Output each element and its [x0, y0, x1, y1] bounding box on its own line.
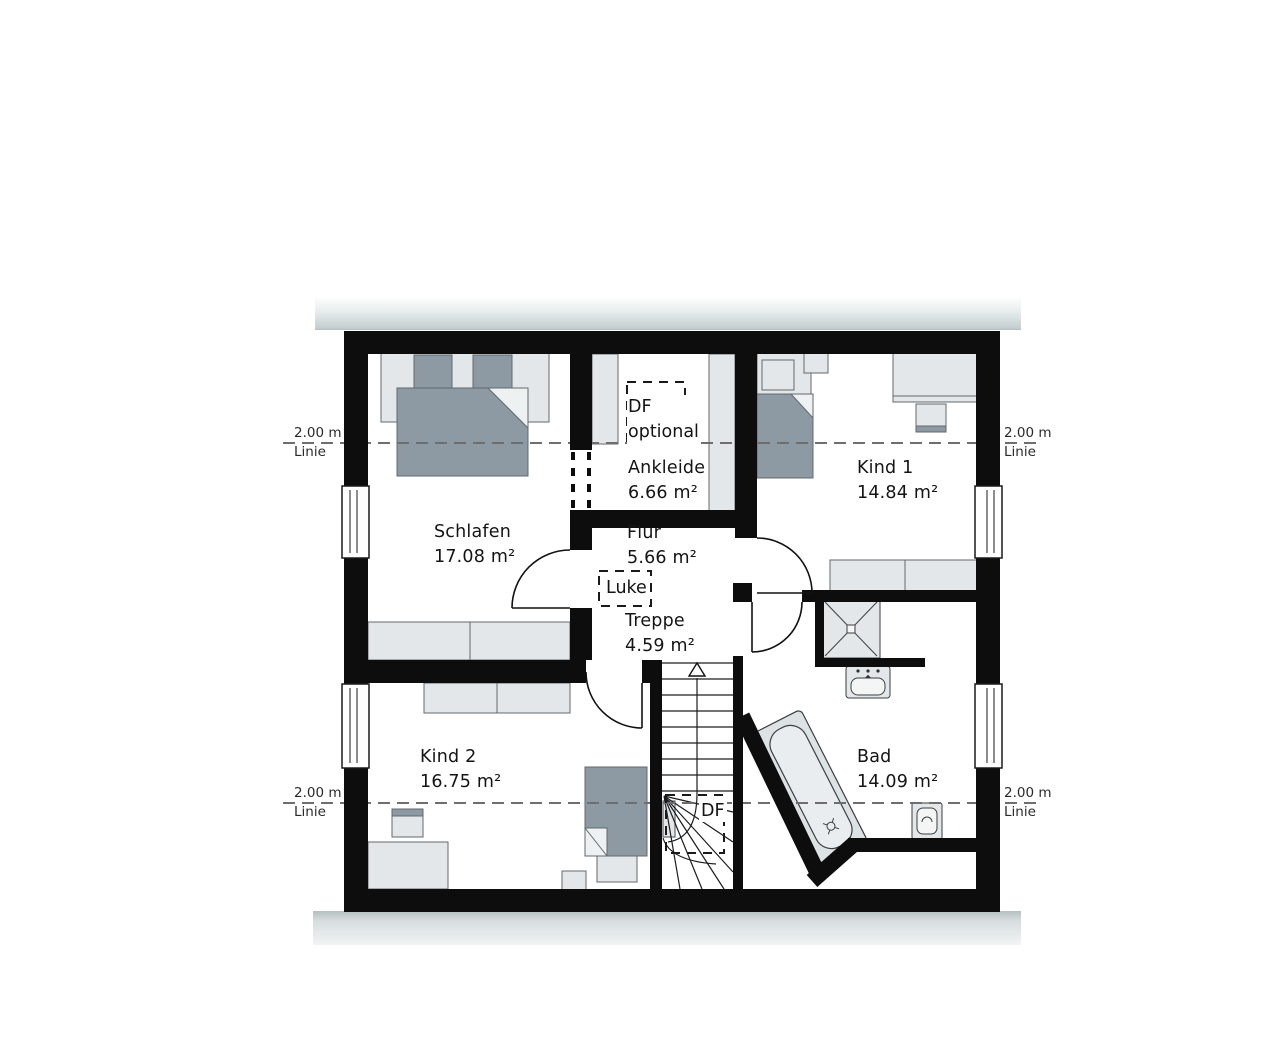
toilet-icon [912, 803, 942, 839]
room-label-kind2: Kind 2 16.75 m² [420, 745, 501, 795]
window-icon [975, 684, 1002, 768]
door-arc-kind1 [757, 538, 812, 593]
annotation-attic-hatch: Luke [604, 577, 649, 599]
up-arrow-icon [689, 663, 705, 676]
room-label-schlafen: Schlafen 17.08 m² [434, 520, 515, 570]
roof-eave-top [315, 298, 1021, 330]
sideboard-icon [368, 622, 570, 660]
kneewall-marker-bottom-right: 2.00 m Linie [1004, 784, 1052, 822]
window-icon [342, 684, 369, 768]
window-icon [975, 486, 1002, 558]
door-arc-bad [752, 602, 802, 652]
room-label-treppe: Treppe 4.59 m² [625, 609, 695, 659]
desk-icon [893, 352, 982, 402]
single-bed-icon [562, 767, 647, 895]
floorplan-page: Schlafen 17.08 m² Ankleide 6.66 m² Kind … [0, 0, 1280, 1058]
room-label-ankleide: Ankleide 6.66 m² [628, 456, 705, 506]
annotation-roof-window: DF [699, 800, 727, 822]
chair-icon [392, 809, 423, 837]
staircase [662, 663, 733, 889]
kneewall-marker-top-left: 2.00 m Linie [294, 424, 342, 462]
double-bed-icon [381, 352, 549, 476]
door-arc-kind2 [586, 672, 642, 728]
sink-icon [846, 666, 890, 698]
annotation-roof-window-optional: DF optional [627, 395, 700, 445]
window-icon [342, 486, 369, 558]
shower-icon [823, 600, 880, 658]
room-label-bad: Bad 14.09 m² [857, 745, 938, 795]
room-label-kind1: Kind 1 14.84 m² [857, 456, 938, 506]
chair-icon [916, 404, 946, 432]
dashed-wall-opening [573, 452, 589, 510]
kneewall-marker-bottom-left: 2.00 m Linie [294, 784, 342, 822]
roof-eave-bottom [313, 911, 1021, 945]
bathroom-fixtures [754, 600, 942, 865]
sofa-icon [830, 560, 980, 593]
shelf-icon [804, 352, 828, 373]
kneewall-marker-top-right: 2.00 m Linie [1004, 424, 1052, 462]
door-arc-schlafen [512, 550, 570, 608]
desk-icon [368, 842, 448, 889]
sofa-icon [424, 683, 570, 713]
room-label-flur: Flur 5.66 m² [627, 521, 697, 571]
